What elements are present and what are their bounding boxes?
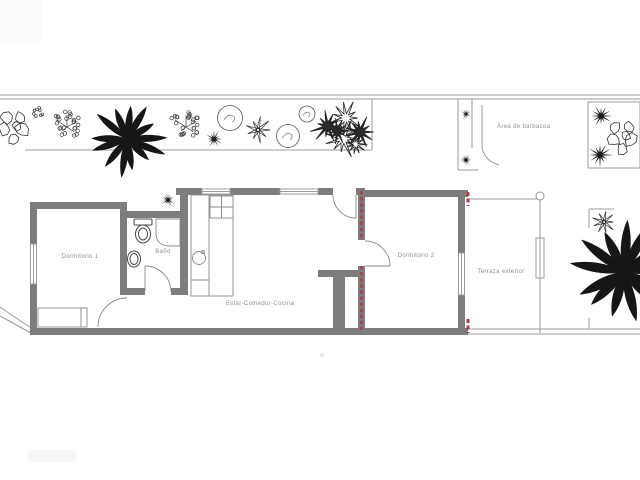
entry-door-arc (98, 298, 127, 327)
dark-flower-icon (206, 129, 223, 146)
bedroom2-door-arc (365, 241, 390, 266)
room-label-estar-comedor-cocina: Estar-Comedor-Cocina (226, 301, 295, 307)
area-barbacoa-label: Área de barbacoa (497, 123, 551, 130)
shrub-branch-icon (170, 111, 199, 137)
spiky-bush-cluster-icon (310, 102, 374, 157)
round-bush-icon (299, 106, 315, 122)
round-bush-icon (277, 125, 300, 148)
room-label-bano: Baño (155, 249, 171, 255)
garden-plants (0, 102, 640, 323)
scan-artifacts (0, 0, 324, 462)
star-plant-icon (589, 144, 614, 167)
rock-cluster-icon (607, 121, 637, 154)
star-plant-icon (591, 106, 613, 126)
palm-tree-icon (569, 219, 640, 322)
shrub-branch-icon (54, 110, 80, 137)
shower-icon (156, 219, 180, 246)
bathroom-fixtures (128, 219, 181, 267)
kitchen-counter (191, 195, 233, 296)
plot-boundary-lines (0, 95, 640, 333)
flower-cluster-icon (32, 106, 43, 117)
wardrobe-furniture (38, 308, 87, 327)
red-reform-markers (362, 191, 469, 333)
building-walls (30, 188, 468, 335)
stove-icon (210, 196, 233, 218)
washbasin-icon (128, 251, 141, 267)
room-label-terraza-exterior: Terraza exterior (477, 269, 524, 275)
garden-gate (458, 99, 499, 170)
potted-plant-icon (461, 109, 471, 120)
floor-plan-page: Dormitorio 1 Baño Estar-Comedor-Cocina D… (0, 0, 640, 480)
room-label-dormitorio-1: Dormitorio 1 (62, 254, 99, 260)
star-flower-icon (592, 211, 613, 232)
palm-tree-icon (91, 105, 167, 178)
round-bush-icon (218, 106, 243, 131)
bathroom-door-arc (145, 266, 171, 292)
rock-cluster-icon (0, 112, 29, 145)
floor-plan-canvas: Dormitorio 1 Baño Estar-Comedor-Cocina D… (0, 0, 640, 480)
star-plant-icon (246, 116, 270, 143)
right-garden-bed (588, 102, 640, 228)
gate-swing-arc (482, 148, 499, 165)
terrace-post-icon (536, 192, 544, 200)
garden-door-arc (333, 195, 356, 218)
toilet-icon (134, 219, 152, 243)
room-label-dormitorio-2: Dormitorio 2 (398, 253, 435, 259)
wall-plant-icon (162, 193, 175, 207)
potted-plant-icon (460, 155, 472, 167)
